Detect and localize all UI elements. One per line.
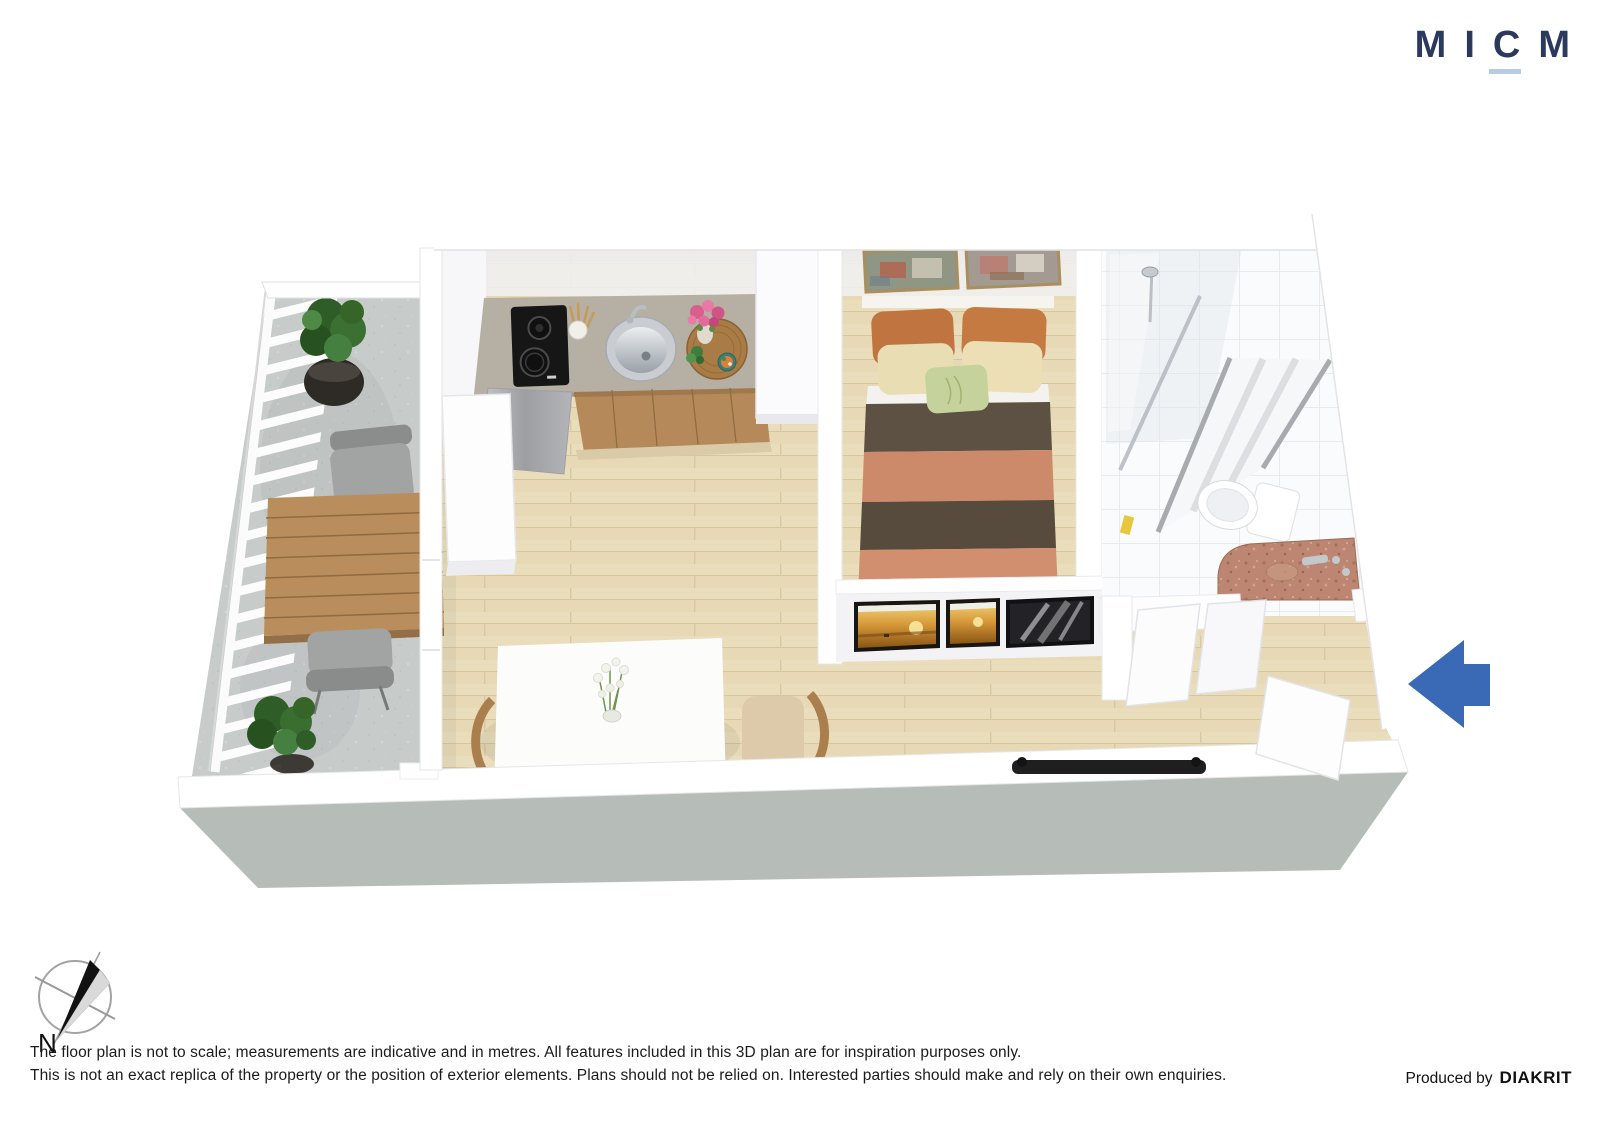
page: M I C M N The floor plan is not to scale… bbox=[0, 0, 1600, 1131]
diakrit-brand: DIAKRIT bbox=[1500, 1068, 1572, 1088]
kitchen-island-cupboard bbox=[442, 394, 516, 576]
logo-letter: M bbox=[1538, 26, 1570, 64]
vanity bbox=[1218, 538, 1360, 600]
micm-logo: M I C M bbox=[1415, 26, 1570, 64]
produced-by-label: Produced by bbox=[1406, 1070, 1493, 1088]
top-wall bbox=[434, 214, 1330, 250]
floor-plan-illustration bbox=[0, 0, 1600, 1131]
balcony bbox=[192, 282, 444, 776]
wardrobe-panel bbox=[1196, 600, 1266, 694]
hall-wall-column bbox=[1102, 596, 1132, 700]
pillow-green bbox=[924, 364, 989, 414]
logo-underline bbox=[1489, 69, 1521, 74]
logo-letter: I bbox=[1464, 26, 1475, 64]
entry-arrow-icon bbox=[1408, 640, 1490, 728]
wardrobe-panel bbox=[1126, 604, 1200, 706]
bedroom-right-wall bbox=[1076, 246, 1102, 600]
left-wall bbox=[420, 248, 442, 770]
wall-pictures bbox=[854, 596, 1094, 652]
pantry-cabinet bbox=[756, 246, 822, 424]
shower-head bbox=[1142, 267, 1158, 277]
disclaimer-line-1: The floor plan is not to scale; measurem… bbox=[30, 1044, 1021, 1062]
outdoor-table bbox=[264, 492, 444, 644]
logo-letter: M bbox=[1415, 26, 1447, 64]
logo-letter-c: C bbox=[1493, 26, 1520, 64]
cooktop bbox=[511, 305, 570, 387]
disclaimer-line-2: This is not an exact replica of the prop… bbox=[30, 1067, 1226, 1085]
balcony-top-rail bbox=[262, 282, 438, 298]
kitchen-cabinets bbox=[574, 388, 772, 460]
produced-by-credit: Produced by DIAKRIT bbox=[1406, 1068, 1572, 1088]
